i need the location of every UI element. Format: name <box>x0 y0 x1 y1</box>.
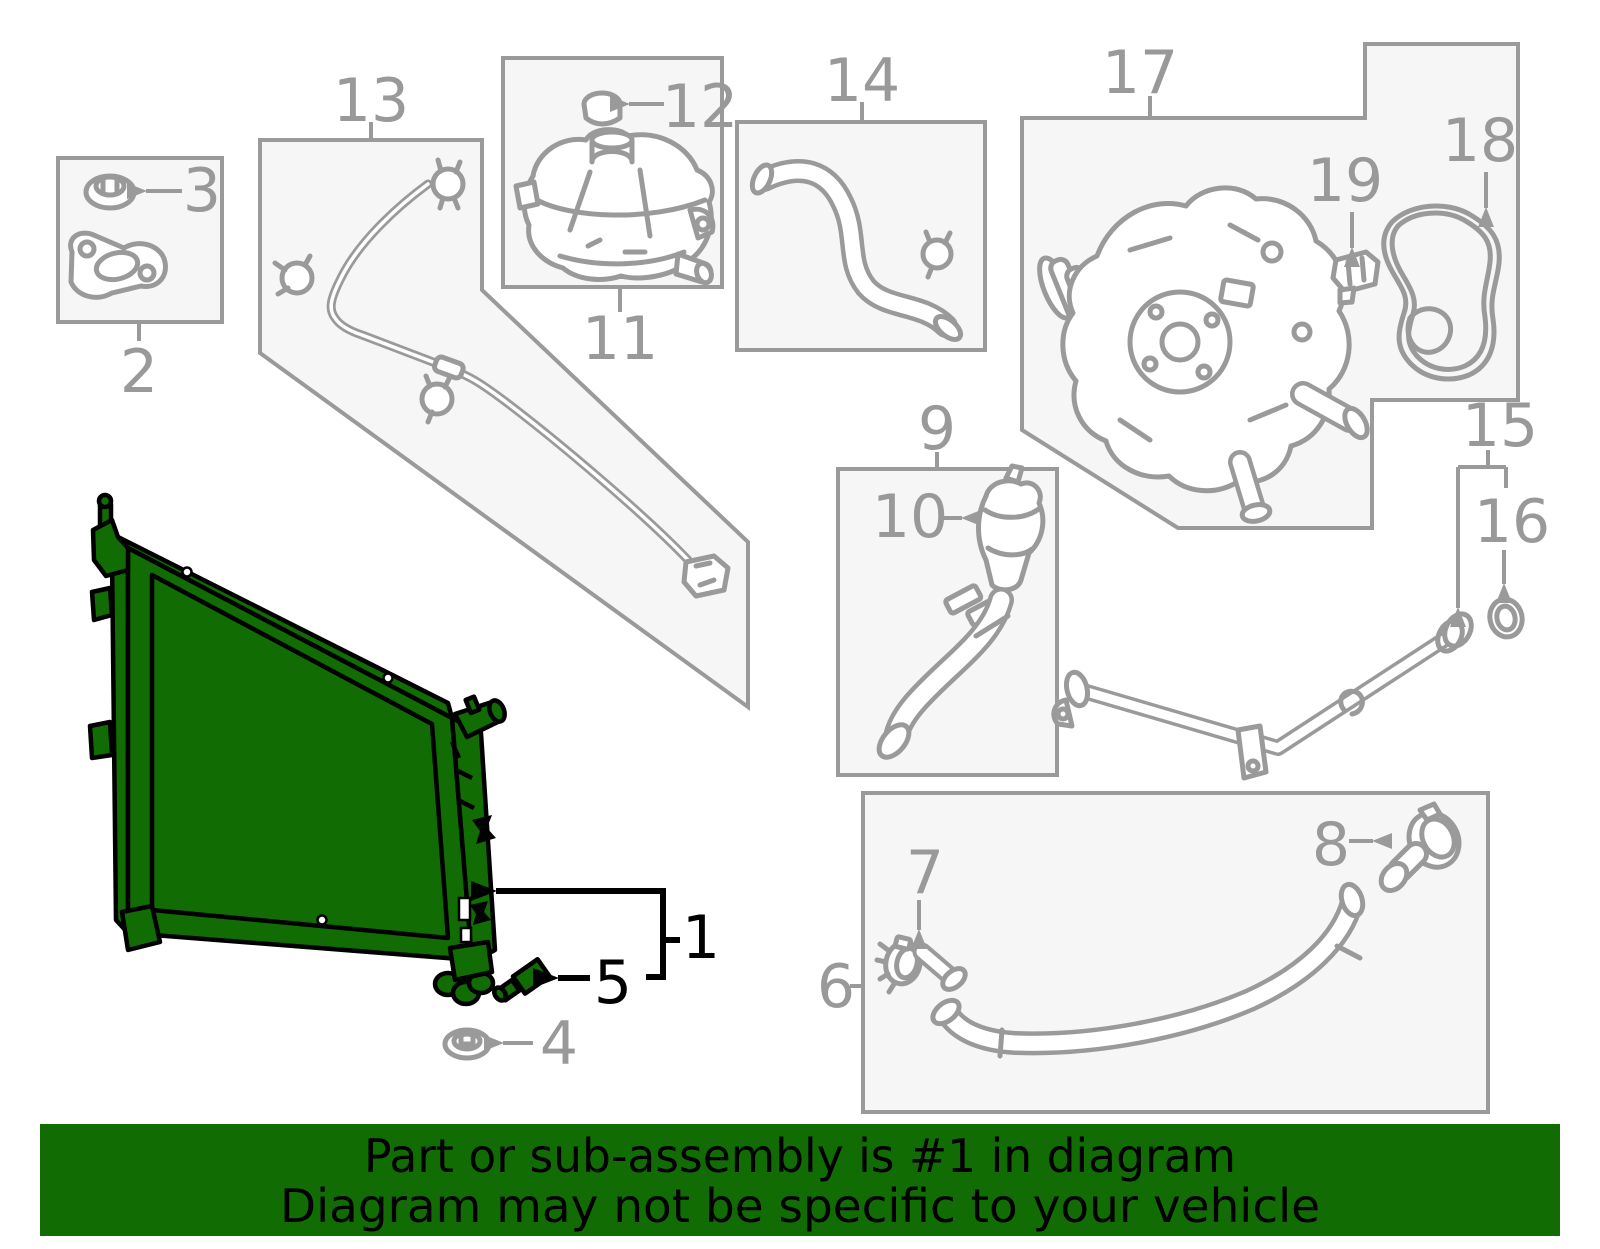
grommet-part-3-art <box>86 176 134 208</box>
reservoir-part-11-art <box>516 130 714 285</box>
radiator-bottom-left-foot <box>122 906 160 950</box>
box-part-6 <box>863 793 1488 1112</box>
callout-4-label: 4 <box>540 1009 578 1079</box>
callout-1-bracket <box>496 891 663 977</box>
callout-2-label: 2 <box>120 337 158 407</box>
callout-5-label: 5 <box>594 948 632 1018</box>
callout-17-label: 17 <box>1102 38 1178 108</box>
parts-diagram-svg: 2 3 13 11 12 14 17 19 18 9 10 15 16 6 7 … <box>0 0 1600 1249</box>
radiator-bolt-hole <box>384 674 393 683</box>
callout-19-label: 19 <box>1307 146 1383 216</box>
radiator-filler-neck <box>455 697 508 737</box>
callout-6-label: 6 <box>817 952 855 1022</box>
callout-1-label: 1 <box>682 903 720 973</box>
water-pipe-part-15-art <box>1054 609 1477 778</box>
highlight-banner: Part or sub-assembly is #1 in diagram Di… <box>40 1124 1560 1236</box>
oring-part-16-art <box>1486 596 1525 640</box>
radiator-top-left-bracket <box>93 495 128 576</box>
cap-part-12-art <box>584 93 620 124</box>
radiator-part-1-art <box>90 495 508 1004</box>
callout-12-label: 12 <box>662 72 738 142</box>
radiator-bolt-hole <box>183 568 192 577</box>
callout-16-label: 16 <box>1474 487 1550 557</box>
callout-7-label: 7 <box>906 838 944 908</box>
grommet-part-4-art <box>445 1030 489 1058</box>
tube-end-clip-art <box>684 556 728 596</box>
banner-line-1: Part or sub-assembly is #1 in diagram <box>364 1129 1236 1183</box>
radiator-tank-slot <box>461 928 471 942</box>
radiator-left-tab <box>90 722 112 758</box>
callout-8-label: 8 <box>1312 810 1350 880</box>
banner-line-2: Diagram may not be specific to your vehi… <box>280 1179 1320 1233</box>
radiator-bolt-hole <box>318 916 327 925</box>
drain-plug-part-5-art <box>492 959 550 1002</box>
callout-10-label: 10 <box>872 482 948 552</box>
radiator-tank-slot <box>459 898 470 920</box>
callout-18-label: 18 <box>1442 106 1518 176</box>
parts-diagram-page: 2 3 13 11 12 14 17 19 18 9 10 15 16 6 7 … <box>0 0 1600 1249</box>
callout-11-label: 11 <box>582 304 658 374</box>
radiator-left-tab <box>92 588 112 620</box>
callout-15-label: 15 <box>1462 391 1538 461</box>
callout-3-label: 3 <box>183 156 221 226</box>
